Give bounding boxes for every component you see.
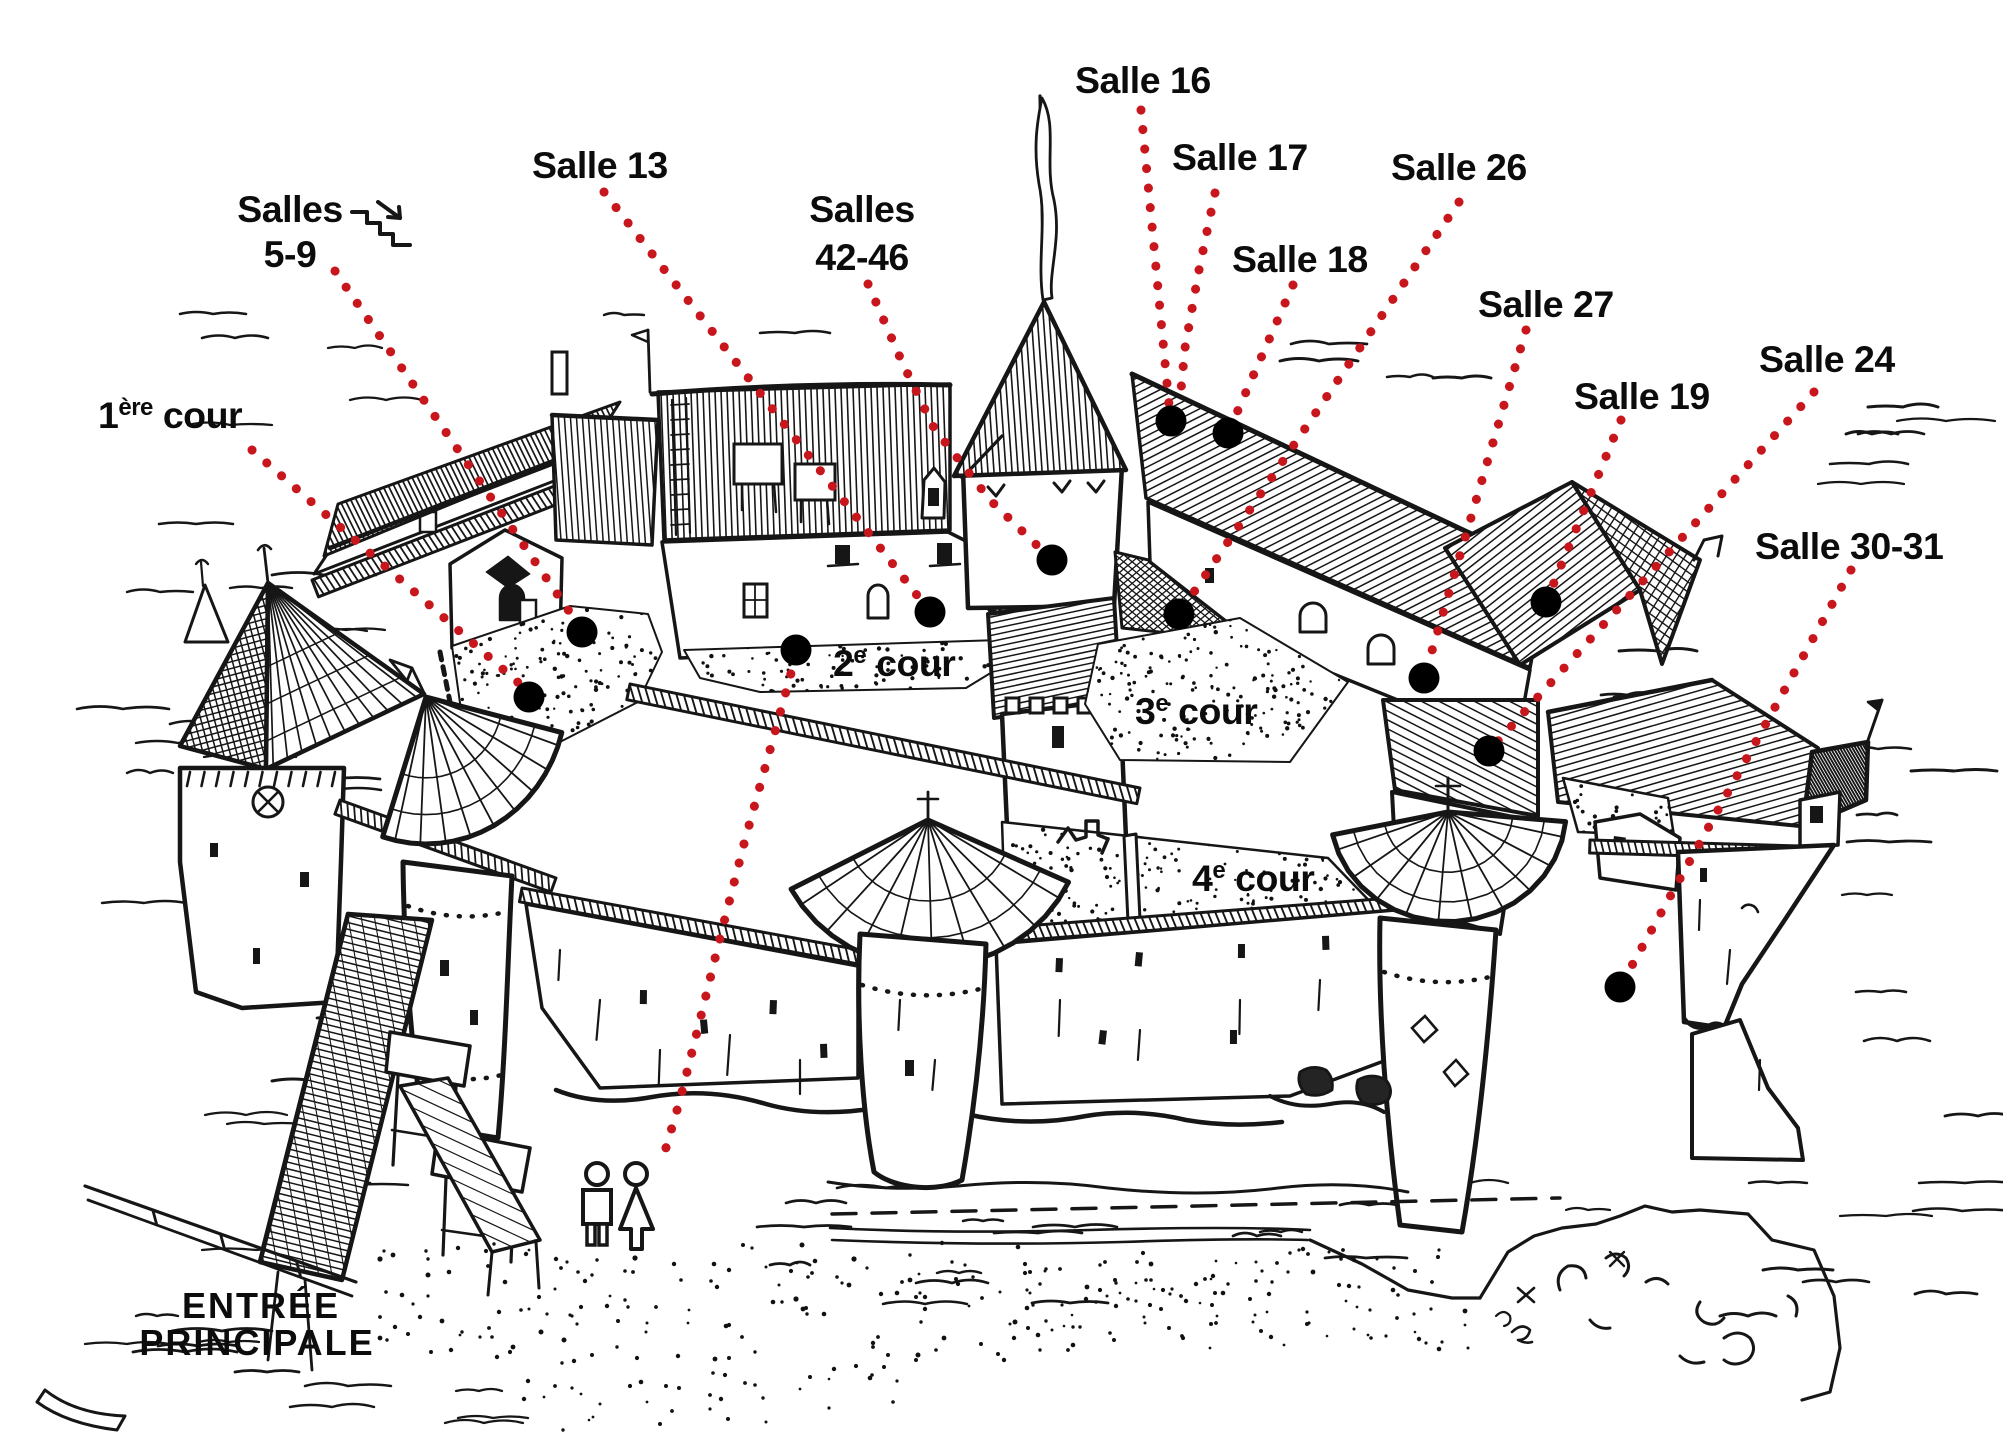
svg-text:Salle 17: Salle 17 [1172,136,1308,178]
svg-text:Salles: Salles [809,188,914,230]
svg-text:Salle 13: Salle 13 [532,144,668,186]
svg-text:Salle 30-31: Salle 30-31 [1755,525,1943,567]
svg-text:Salle 18: Salle 18 [1232,238,1368,280]
svg-text:2e cour: 2e cour [833,642,956,684]
svg-text:Salles: Salles [237,188,342,230]
svg-text:Salle 19: Salle 19 [1574,375,1710,417]
svg-text:5-9: 5-9 [264,233,317,275]
svg-text:42-46: 42-46 [815,236,908,278]
svg-text:Salle 24: Salle 24 [1759,338,1895,380]
svg-text:Salle 27: Salle 27 [1478,283,1614,325]
svg-text:4e cour: 4e cour [1192,857,1315,899]
svg-text:Salle 16: Salle 16 [1075,59,1211,101]
svg-text:ENTRÉE: ENTRÉE [182,1285,340,1326]
svg-text:Salle 26: Salle 26 [1391,146,1527,188]
svg-text:3e cour: 3e cour [1135,690,1258,732]
svg-text:PRINCIPALE: PRINCIPALE [139,1322,374,1363]
